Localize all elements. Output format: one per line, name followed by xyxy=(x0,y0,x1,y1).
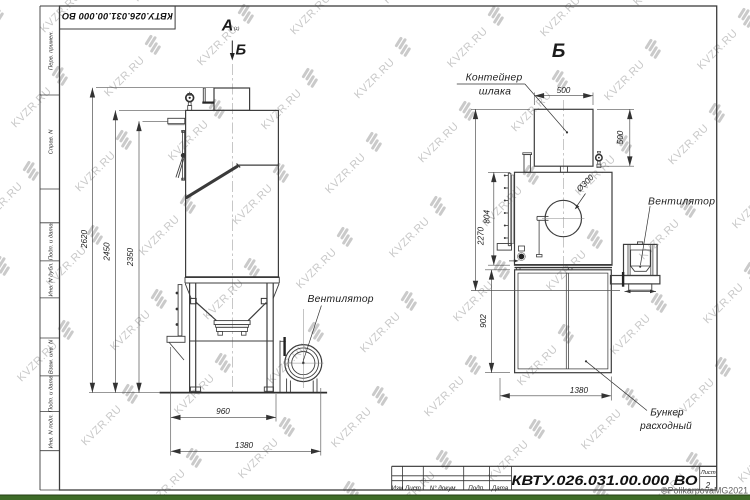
svg-text:Контейнер: Контейнер xyxy=(466,73,523,84)
svg-text:Изм: Изм xyxy=(391,485,403,492)
svg-text:804: 804 xyxy=(482,210,491,224)
svg-text:расходный: расходный xyxy=(639,421,692,432)
svg-text:902: 902 xyxy=(479,314,488,328)
svg-text:А: А xyxy=(221,18,234,35)
svg-text:Подп. и дата: Подп. и дата xyxy=(49,375,55,413)
svg-text:(1): (1) xyxy=(234,26,240,31)
svg-text:2350: 2350 xyxy=(126,247,135,267)
svg-text:Вентилятор: Вентилятор xyxy=(308,294,374,305)
svg-text:Взам. инв. N: Взам. инв. N xyxy=(49,339,55,374)
svg-text:Подп.: Подп. xyxy=(468,485,484,492)
svg-text:500: 500 xyxy=(616,130,625,144)
svg-text:Вентилятор: Вентилятор xyxy=(648,197,715,208)
svg-text:1380: 1380 xyxy=(235,441,254,450)
svg-text:Б: Б xyxy=(236,42,247,59)
svg-text:Лист: Лист xyxy=(404,485,421,492)
svg-text:КВТУ.026.031.00.000 ВО: КВТУ.026.031.00.000 ВО xyxy=(61,11,173,21)
svg-text:1380: 1380 xyxy=(570,386,589,395)
svg-text:Лист: Лист xyxy=(700,470,716,476)
svg-text:Перв. примен.: Перв. примен. xyxy=(49,31,55,70)
svg-text:©PolikarpovaMG2021: ©PolikarpovaMG2021 xyxy=(661,485,748,495)
svg-text:Бункер: Бункер xyxy=(650,408,684,419)
svg-text:Инв. N дубл.: Инв. N дубл. xyxy=(49,262,55,296)
svg-text:Справ. N: Справ. N xyxy=(49,129,55,154)
svg-text:Инв. N подл.: Инв. N подл. xyxy=(49,414,55,448)
svg-text:шлака: шлака xyxy=(479,86,512,98)
svg-text:Подп. и дата: Подп. и дата xyxy=(49,223,55,261)
svg-text:N° докум.: N° докум. xyxy=(430,485,458,492)
svg-text:2620: 2620 xyxy=(80,229,89,249)
svg-text:960: 960 xyxy=(216,407,230,416)
svg-text:2450: 2450 xyxy=(103,242,112,262)
svg-text:Дата: Дата xyxy=(491,485,509,492)
svg-text:2270: 2270 xyxy=(476,226,485,246)
svg-text:500: 500 xyxy=(557,86,571,95)
svg-text:Б: Б xyxy=(552,41,565,62)
